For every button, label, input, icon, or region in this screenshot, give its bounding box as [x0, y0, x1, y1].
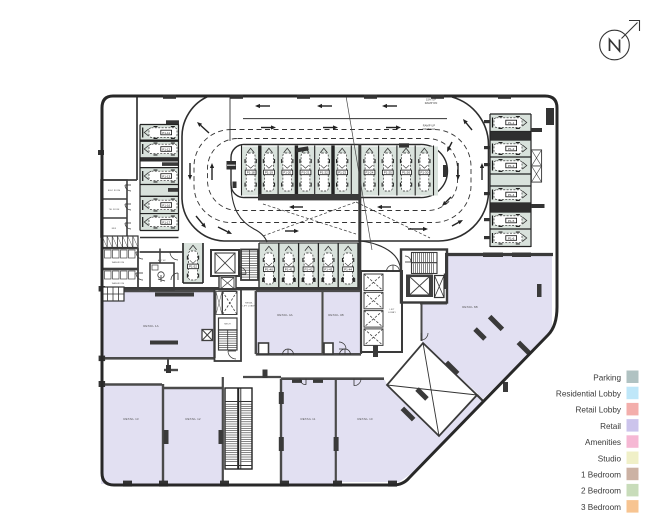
svg-text:P1-19: P1-19 [265, 171, 273, 175]
svg-text:P1-11: P1-11 [162, 131, 170, 135]
svg-text:P1-16: P1-16 [162, 203, 170, 207]
svg-text:P1-25: P1-25 [384, 171, 392, 175]
svg-text:P1-6: P1-6 [508, 236, 515, 240]
svg-text:P1-20: P1-20 [283, 171, 291, 175]
svg-text:Retail: Retail [600, 422, 621, 431]
svg-text:P1-4: P1-4 [508, 193, 515, 197]
svg-text:RETAIL 4B: RETAIL 4B [328, 313, 344, 317]
svg-text:WASHROOM: WASHROOM [112, 282, 125, 285]
svg-text:P1-30: P1-30 [420, 171, 428, 175]
svg-text:Retail Lobby: Retail Lobby [575, 406, 621, 415]
svg-text:P1-17: P1-17 [162, 220, 170, 224]
svg-text:P1-40: P1-40 [265, 268, 273, 272]
svg-text:P1-22: P1-22 [320, 171, 328, 175]
svg-text:TEL ROOM: TEL ROOM [109, 209, 120, 211]
svg-text:RAMP UP: RAMP UP [423, 124, 436, 128]
svg-text:P1-21: P1-21 [301, 171, 309, 175]
svg-text:RETAIL 10: RETAIL 10 [357, 417, 372, 421]
svg-text:P1-44: P1-44 [344, 268, 352, 272]
svg-text:P1-3: P1-3 [508, 164, 515, 168]
svg-text:P1-52: P1-52 [189, 265, 197, 269]
svg-text:P1-13: P1-13 [162, 174, 170, 178]
svg-text:RETAIL 4A: RETAIL 4A [277, 313, 293, 317]
svg-text:RETAIL: RETAIL [245, 302, 253, 305]
svg-text:P1-41: P1-41 [285, 268, 293, 272]
svg-text:LIFT: LIFT [390, 309, 395, 311]
svg-text:P1-18: P1-18 [247, 171, 255, 175]
svg-text:RETAIL 12: RETAIL 12 [185, 417, 200, 421]
svg-text:MDF: MDF [112, 228, 117, 230]
svg-text:LOBBY: LOBBY [388, 312, 396, 314]
svg-text:FROM GF: FROM GF [423, 127, 436, 131]
svg-text:ELEC ROOM: ELEC ROOM [108, 190, 121, 192]
svg-text:P1-12: P1-12 [162, 147, 170, 151]
svg-text:P1-42: P1-42 [304, 268, 312, 272]
svg-text:P1-23: P1-23 [338, 171, 346, 175]
svg-text:2 Bedroom: 2 Bedroom [581, 487, 621, 496]
svg-text:RAMP DN: RAMP DN [425, 101, 438, 105]
svg-text:P1-1: P1-1 [508, 121, 515, 125]
svg-text:RETAIL 11: RETAIL 11 [300, 417, 315, 421]
svg-text:Studio: Studio [598, 454, 622, 463]
svg-text:P1-5: P1-5 [508, 219, 515, 223]
svg-text:3 Bedroom: 3 Bedroom [581, 503, 621, 512]
svg-text:P1-2: P1-2 [508, 147, 515, 151]
svg-text:RETAIL 6B: RETAIL 6B [462, 305, 478, 309]
svg-text:RETAIL 1A: RETAIL 1A [143, 324, 159, 328]
svg-text:Amenities: Amenities [585, 438, 621, 447]
svg-text:1 Bedroom: 1 Bedroom [581, 471, 621, 480]
svg-text:Residential Lobby: Residential Lobby [556, 390, 622, 399]
svg-text:WASHROOM: WASHROOM [112, 261, 125, 264]
svg-text:P1-24: P1-24 [365, 171, 373, 175]
svg-text:RETAIL 13: RETAIL 13 [123, 417, 138, 421]
svg-text:P1-26: P1-26 [402, 171, 410, 175]
svg-text:Parking: Parking [593, 373, 621, 382]
svg-text:P1-43: P1-43 [324, 268, 332, 272]
svg-text:LIFT LOBBY: LIFT LOBBY [243, 306, 256, 308]
svg-text:MECH: MECH [224, 324, 231, 326]
